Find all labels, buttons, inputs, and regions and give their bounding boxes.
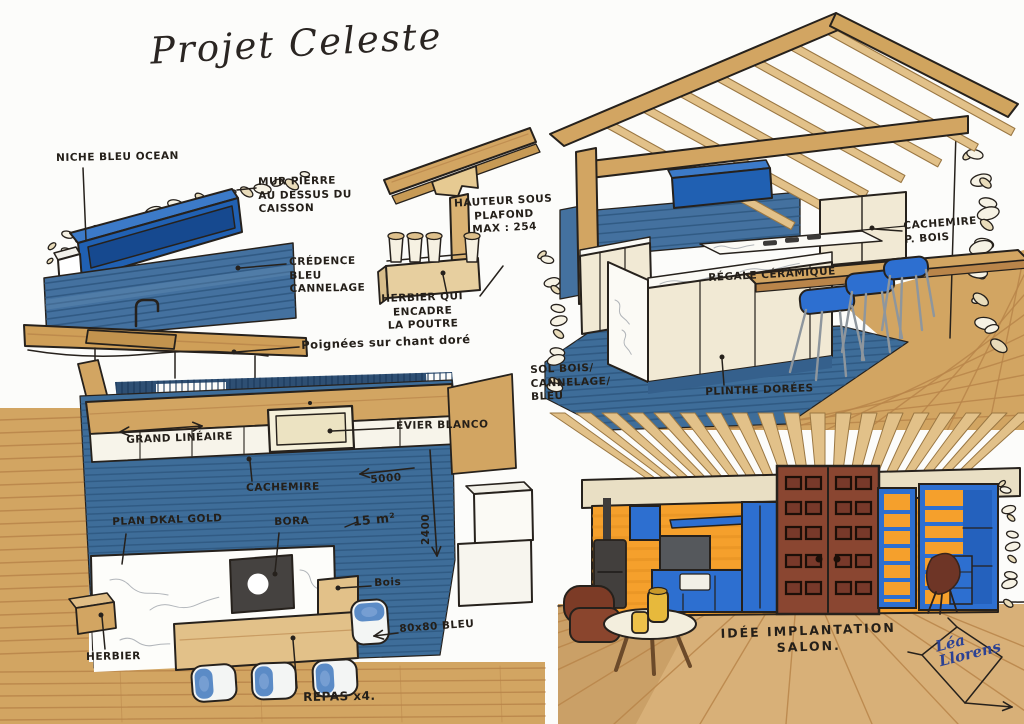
label-evier-blanco: EVIER BLANCO [396, 418, 489, 433]
white-column-boxes [458, 482, 533, 606]
label-herbier-poutre: HERBIER QUI ENCADRE LA POUTRE [352, 289, 493, 335]
blue-wardrobe [742, 502, 779, 612]
tall-cachemire-cabinets [820, 192, 906, 266]
sketch-canvas [0, 0, 1024, 724]
upper-blue-cabinet [630, 506, 660, 540]
kitchen-plan-sketch [0, 360, 545, 724]
label-dim-5000: 5000 [370, 471, 402, 487]
label-credence-cannelage: CRÉDENCE BLEU CANNELAGE [289, 255, 365, 297]
pergola-right-rafter [830, 13, 1018, 117]
label-mur-pierre: MUR PIERRE AU DESSUS DU CAISSON [258, 174, 352, 217]
carved-double-doors [777, 466, 879, 614]
label-hauteur-plafond: HAUTEUR SOUS PLAFOND MAX : 254 [447, 192, 561, 239]
sketch-page: Projet Celeste NICHE BLEU OCEAN MUR PIER… [0, 0, 1024, 724]
label-sol-bois-cannelage: SOL BOIS/ CANNELAGE/ BLEU [530, 361, 611, 405]
stone-wall-edge [998, 479, 1021, 609]
label-cachemire-plan: CACHEMIRE [246, 481, 320, 496]
label-bois: Bois [374, 576, 402, 591]
label-niche-bleu-ocean: NICHE BLEU OCEAN [56, 150, 179, 166]
blanco-sink-plan [268, 401, 354, 452]
label-repas-x4: REPAS x4. [303, 689, 376, 706]
leather-armchair [564, 586, 620, 642]
tv-screen [660, 536, 710, 572]
bora-cooktop-plan [230, 555, 294, 613]
label-dim-2400: 2400 [420, 514, 434, 545]
roof-beam [384, 128, 540, 204]
blue-shelving-unit-left [878, 488, 916, 608]
label-cachemire-bois: CACHEMIRE P. BOIS [903, 215, 978, 247]
label-bora: BORA [274, 515, 310, 530]
label-herbier-plan: HERBIER [86, 650, 141, 665]
label-idee-implantation-salon: IDÉE IMPLANTATION SALON. [718, 620, 899, 659]
